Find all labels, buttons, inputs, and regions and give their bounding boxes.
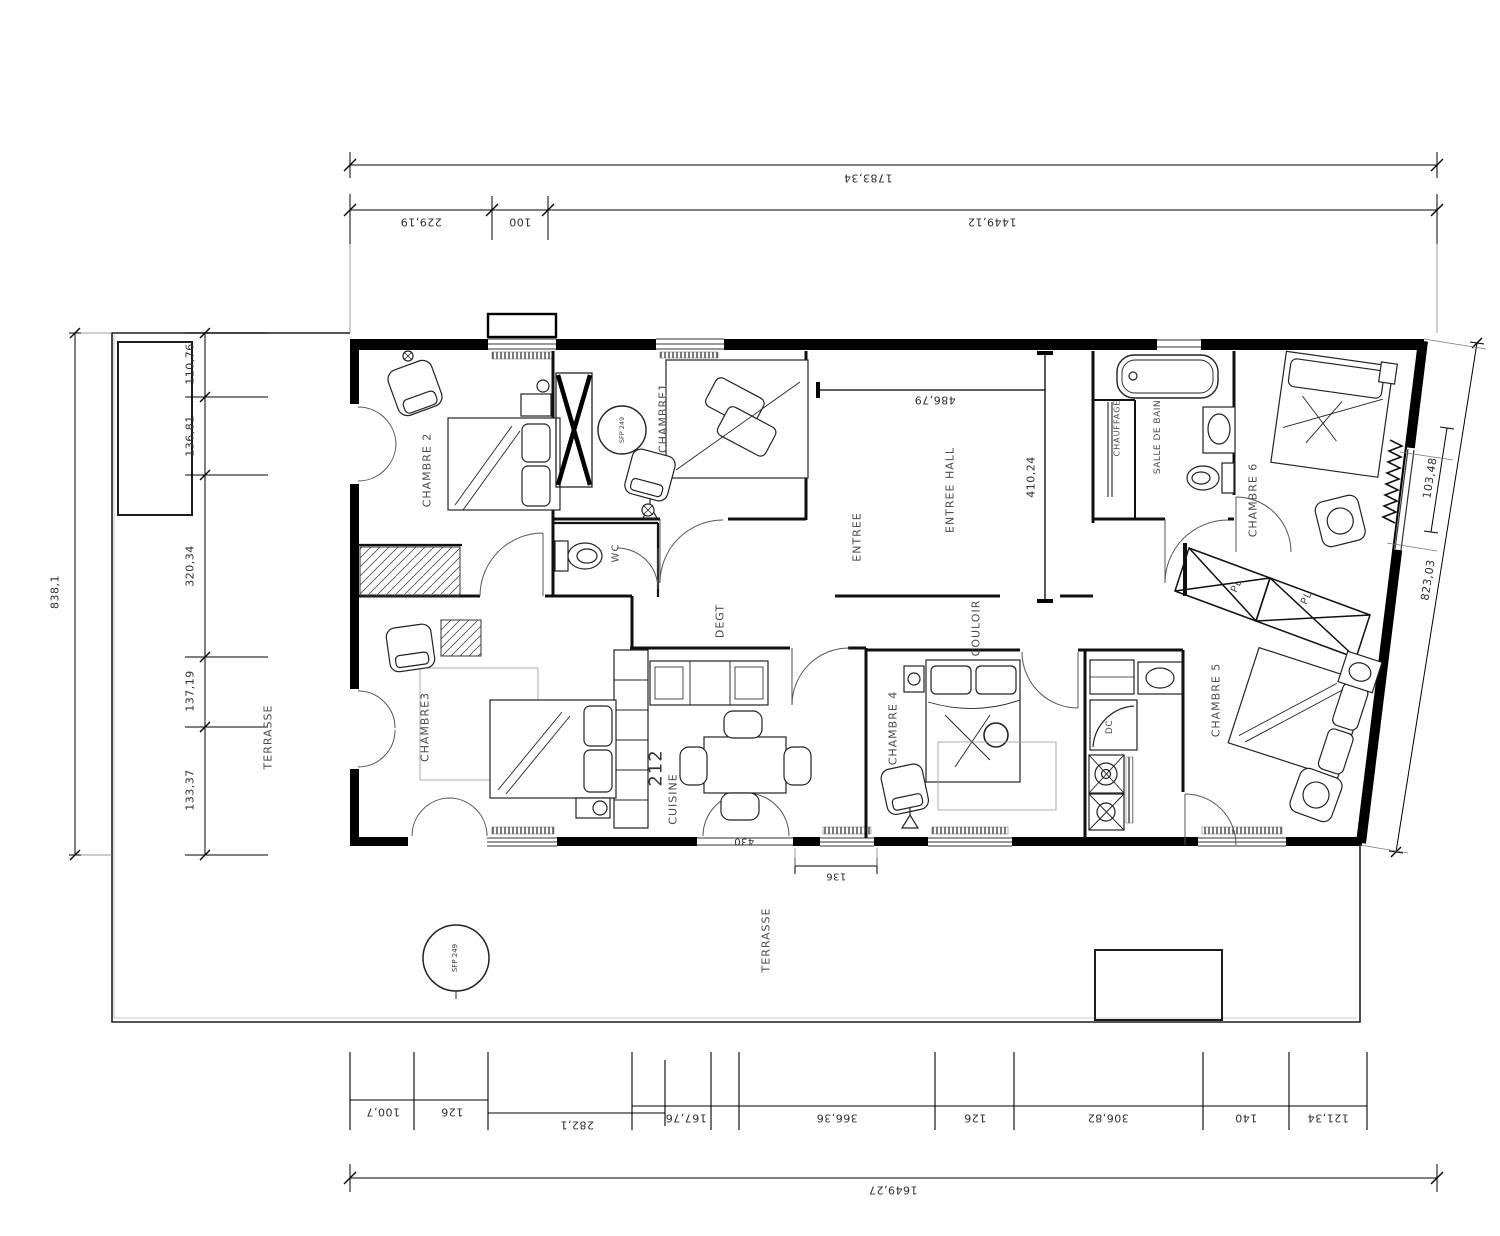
room-label-chambre3: CHAMBRE3 xyxy=(419,692,432,762)
dim-left-overall: 838,1 xyxy=(49,575,62,609)
dim-door-430: 430 xyxy=(734,836,755,847)
room-label-wc: WC xyxy=(611,544,622,563)
room-label-chambre6: CHAMBRE 6 xyxy=(1247,463,1260,538)
room-label-chambre2: CHAMBRE 2 xyxy=(421,433,434,508)
dim-hall-width: 486,79 xyxy=(914,394,956,407)
dim-bottom-seg-7: 306,82 xyxy=(1087,1112,1129,1125)
room-label-terrasse-bottom: TERRASSE xyxy=(760,908,773,973)
equipment-label-sfp-top: SFP 249 xyxy=(618,417,626,443)
room-label-entree-hall: ENTREE HALL xyxy=(944,447,957,533)
dim-bottom-seg-8: 140 xyxy=(1235,1112,1258,1125)
room-label-chambre4: CHAMBRE 4 xyxy=(887,691,900,766)
room-label-couloir: COULOIR xyxy=(970,600,983,657)
dim-bottom-seg-3: 282,1 xyxy=(560,1119,594,1132)
dim-offset-136: 136 xyxy=(826,871,847,882)
room-label-entree: ENTREE xyxy=(851,512,864,561)
dim-top-overall: 1783,34 xyxy=(844,172,893,185)
dim-left-seg-5: 133,37 xyxy=(184,769,197,811)
furniture xyxy=(360,351,1397,999)
dim-bottom-seg-5: 366,36 xyxy=(816,1112,858,1125)
dim-bottom-seg-1: 100,7 xyxy=(366,1106,400,1119)
dim-hall-depth: 410,24 xyxy=(1025,456,1038,498)
floor-plan-drawing xyxy=(0,0,1500,1236)
dim-left-seg-4: 137,19 xyxy=(184,670,197,712)
dim-left-seg-2: 136,81 xyxy=(184,415,197,457)
dim-left-seg-1: 110,76 xyxy=(184,343,197,385)
dim-left-seg-3: 320,34 xyxy=(184,545,197,587)
room-label-dc: DC xyxy=(1105,720,1115,734)
dim-bottom-seg-9: 121,34 xyxy=(1307,1112,1349,1125)
room-label-chambre1: CHAMBRE1 xyxy=(657,383,670,453)
dim-bottom-seg-2: 126 xyxy=(441,1106,464,1119)
room-label-chambre5: CHAMBRE 5 xyxy=(1210,663,1223,738)
room-label-salle-de-bain: SALLE DE BAIN xyxy=(1153,400,1163,474)
dim-bottom-seg-6: 126 xyxy=(964,1112,987,1125)
room-label-cuisine: CUISINE xyxy=(667,773,680,824)
floor-plan-sheet: 1783,34 229,19 100 1449,12 100,7 126 282… xyxy=(0,0,1500,1236)
equipment-label-sfp-terrace: SFP 249 xyxy=(451,944,459,972)
dim-bottom-seg-4: 167,76 xyxy=(665,1112,707,1125)
dim-top-seg-2: 100 xyxy=(509,216,532,229)
dim-kitchen-212: 212 xyxy=(646,749,667,786)
dim-top-seg-1: 229,19 xyxy=(400,216,442,229)
room-label-chauffage: CHAUFFAGE xyxy=(1113,400,1122,457)
dim-bottom-overall: 1649,27 xyxy=(869,1184,918,1197)
dim-top-seg-3: 1449,12 xyxy=(968,216,1017,229)
room-label-terrasse-left: TERRASSE xyxy=(262,705,275,770)
room-label-degt: DEGT xyxy=(714,604,727,638)
wardrobe-band xyxy=(1175,543,1370,658)
